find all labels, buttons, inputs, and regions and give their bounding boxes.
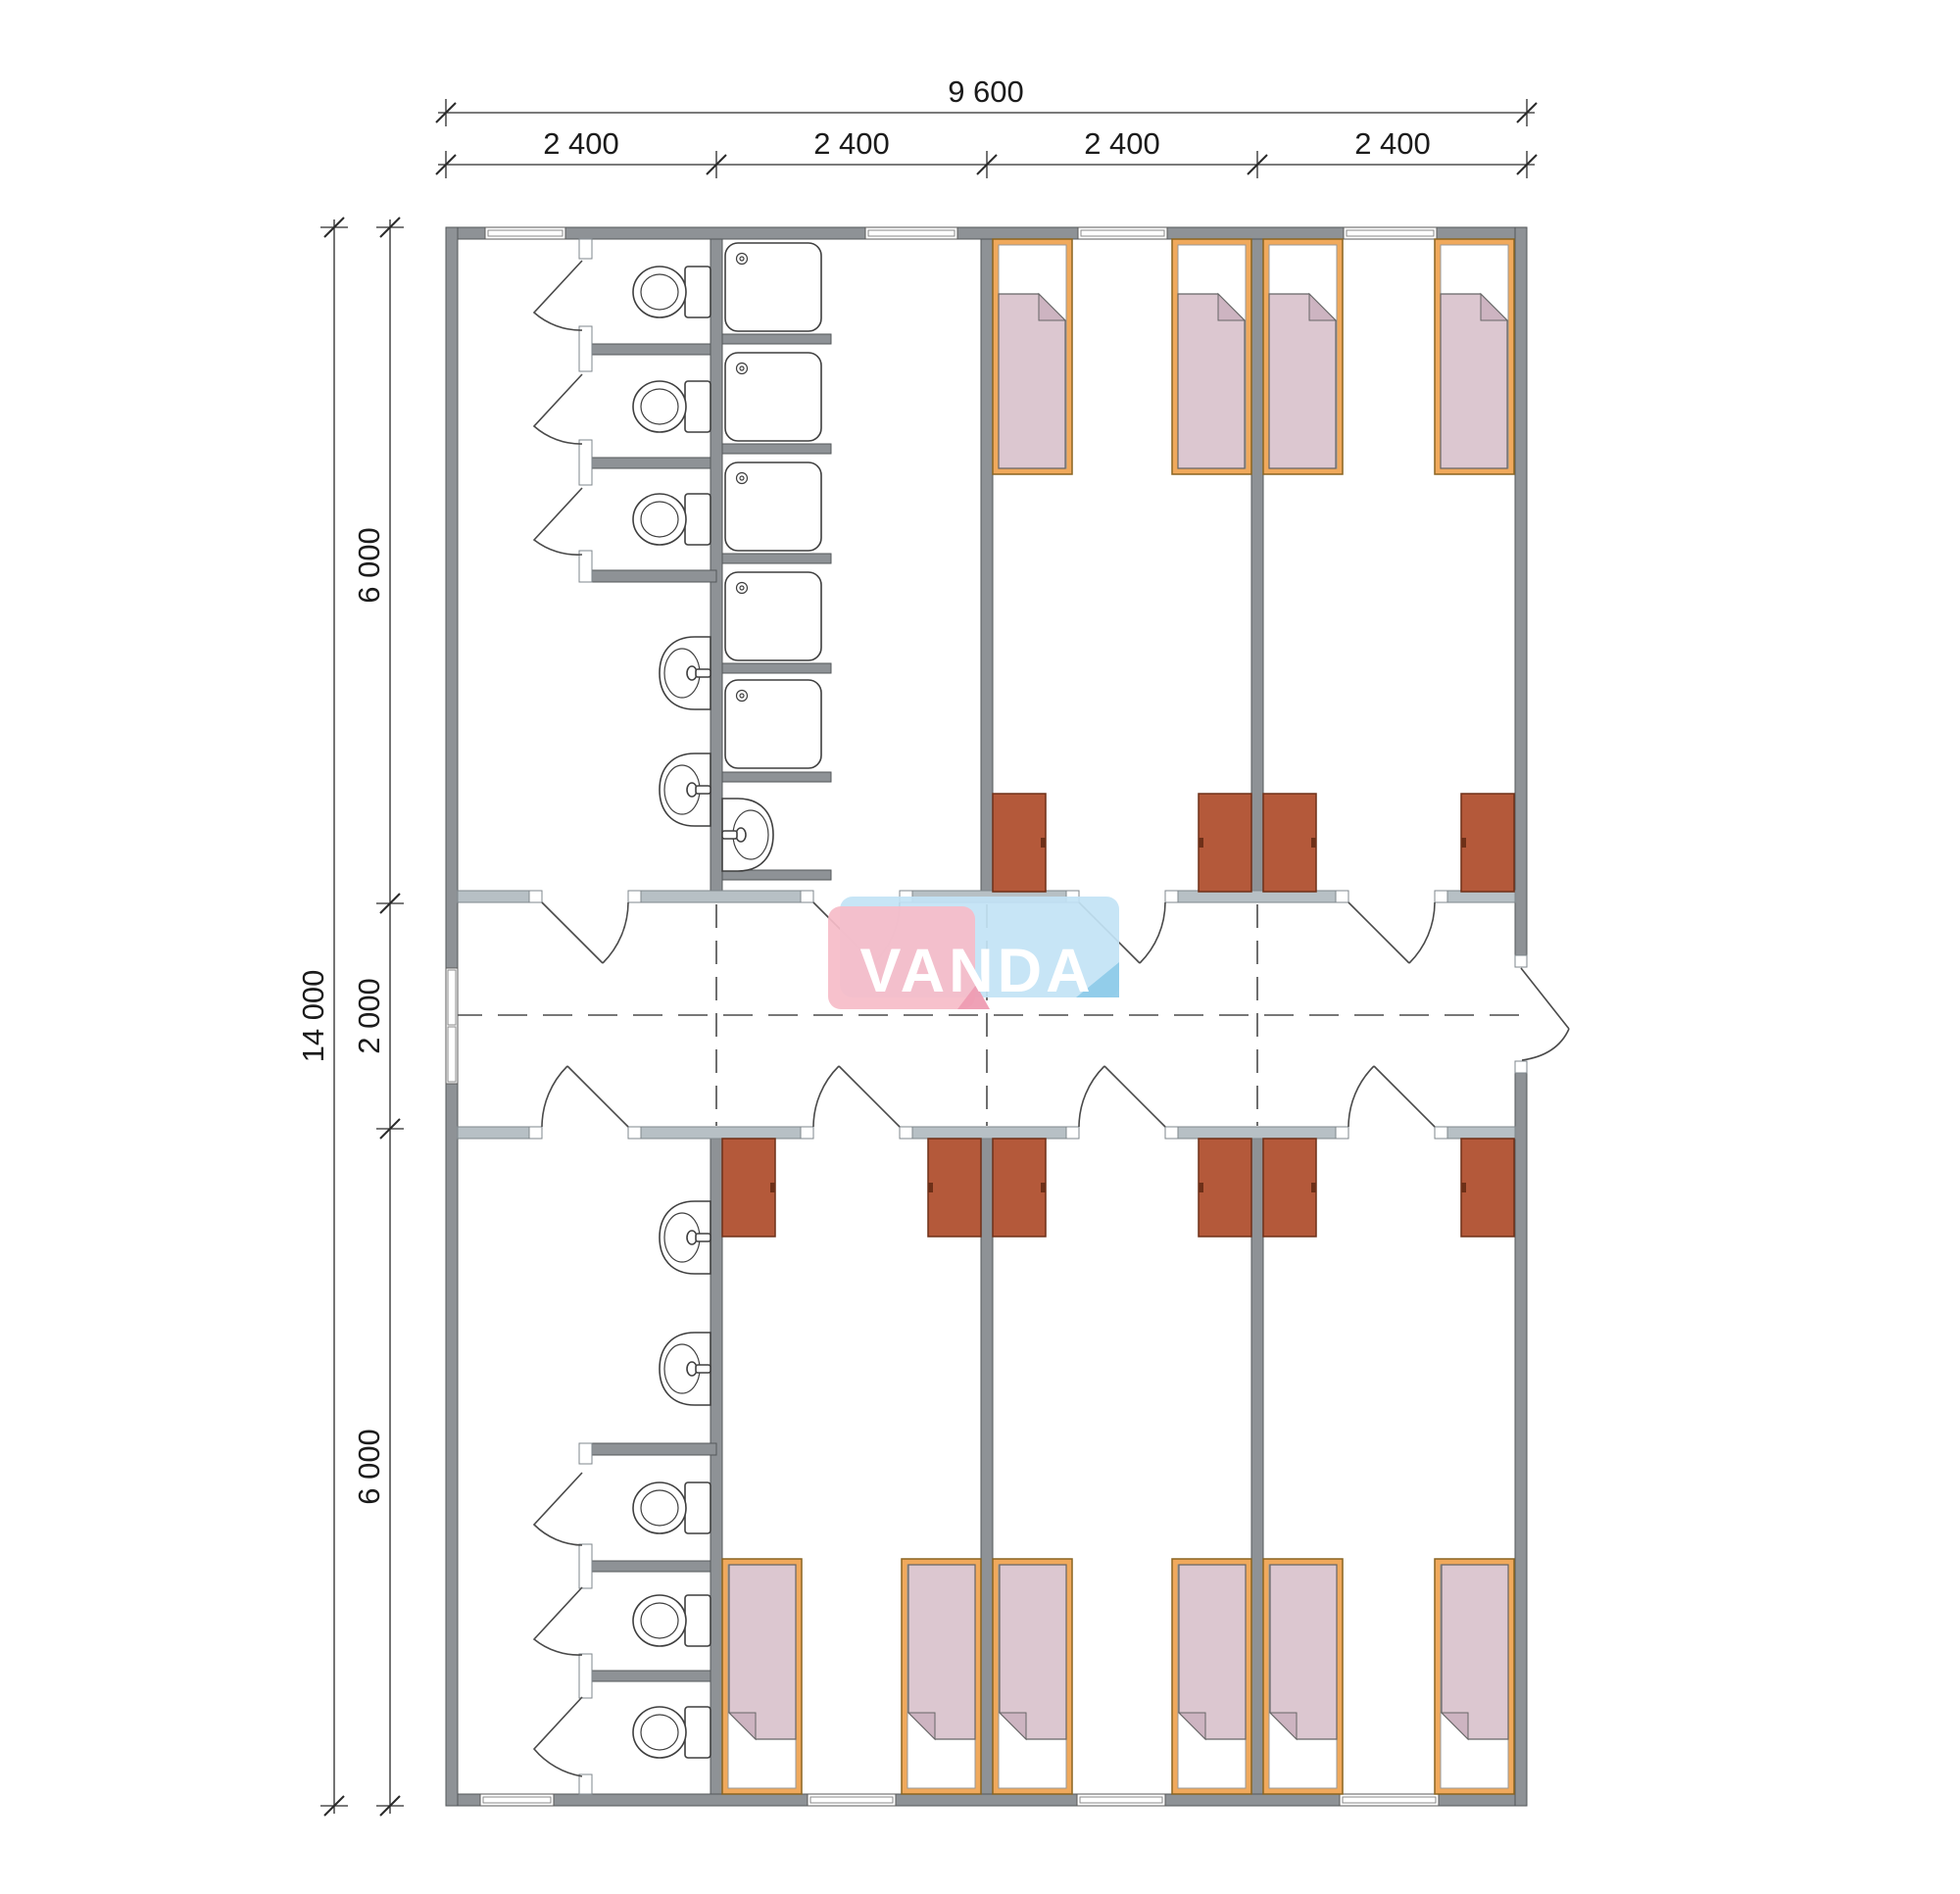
- beds: [722, 239, 1514, 1794]
- dim-label-bay-2: 2 400: [813, 126, 890, 161]
- room-door: [1079, 1066, 1165, 1127]
- toilet: [633, 267, 710, 317]
- toilet: [633, 1482, 710, 1533]
- wc-room-top: [534, 239, 716, 826]
- wardrobe: [1263, 1139, 1316, 1237]
- wall-right-lower: [1515, 1061, 1527, 1806]
- bed: [1172, 239, 1251, 474]
- window: [1078, 227, 1167, 239]
- washbasin: [660, 1201, 710, 1274]
- shower-tray: [725, 680, 821, 768]
- dim-label-row-bottom: 6 000: [352, 1429, 386, 1505]
- dim-label-bay-3: 2 400: [1084, 126, 1160, 161]
- toilet: [633, 381, 710, 432]
- window: [1077, 1794, 1165, 1806]
- vanda-logo: VANDA: [828, 897, 1119, 1009]
- corridor: VANDA: [446, 897, 1569, 1127]
- stall-door: [534, 1697, 582, 1776]
- dim-label-bay-4: 2 400: [1354, 126, 1431, 161]
- room-door: [813, 1066, 900, 1127]
- entrance-door-right: [1521, 968, 1569, 1060]
- dim-label-total-height: 14 000: [296, 970, 330, 1063]
- wc-room-bottom: [534, 1201, 716, 1794]
- wall-left-lower: [446, 1084, 458, 1806]
- shower-tray: [725, 462, 821, 551]
- bed: [1435, 1559, 1514, 1794]
- stall-door: [534, 1473, 582, 1545]
- bed: [902, 1559, 981, 1794]
- wardrobe: [1263, 794, 1316, 892]
- bed: [1172, 1559, 1251, 1794]
- bed: [722, 1559, 802, 1794]
- stall-door: [534, 374, 582, 444]
- wardrobe: [1199, 1139, 1251, 1237]
- window: [1340, 1794, 1439, 1806]
- dim-label-row-top: 6 000: [352, 527, 386, 604]
- shower-tray: [725, 243, 821, 331]
- dim-label-total-width: 9 600: [948, 74, 1024, 109]
- dim-label-corridor: 2 000: [352, 978, 386, 1054]
- bed: [1435, 239, 1514, 474]
- washbasin: [660, 637, 710, 709]
- toilet: [633, 1707, 710, 1758]
- window: [485, 227, 565, 239]
- wardrobe: [1461, 1139, 1514, 1237]
- bed: [1263, 239, 1343, 474]
- room-door: [542, 902, 628, 963]
- wardrobe: [993, 794, 1046, 892]
- bed: [1263, 1559, 1343, 1794]
- window: [865, 227, 957, 239]
- stall-door: [534, 261, 582, 330]
- shower-tray: [725, 353, 821, 441]
- wardrobe: [1199, 794, 1251, 892]
- stall-door: [534, 1587, 582, 1655]
- washbasin: [660, 1333, 710, 1405]
- window: [1344, 227, 1437, 239]
- wardrobe: [1461, 794, 1514, 892]
- wardrobe: [928, 1139, 981, 1237]
- shower-tray: [725, 572, 821, 660]
- floor-plan: 9 600 2 400 2 400 2 400 2 400 14 000 6 0…: [0, 0, 1960, 1894]
- wardrobe: [993, 1139, 1046, 1237]
- logo-text: VANDA: [859, 937, 1094, 1005]
- room-door: [1348, 902, 1435, 963]
- washbasin: [722, 799, 773, 871]
- bed: [993, 1559, 1072, 1794]
- shower-room: [722, 243, 831, 880]
- bed: [993, 239, 1072, 474]
- stall-door: [534, 488, 582, 555]
- room-door: [1348, 1066, 1435, 1127]
- room-door: [542, 1066, 628, 1127]
- wardrobe: [722, 1139, 775, 1237]
- dim-label-bay-1: 2 400: [543, 126, 619, 161]
- toilet: [633, 494, 710, 545]
- entrance-door-left: [446, 968, 458, 1084]
- toilet: [633, 1595, 710, 1646]
- wall-right-upper: [1515, 227, 1527, 967]
- floor-plan-drawing: 9 600 2 400 2 400 2 400 2 400 14 000 6 0…: [0, 0, 1960, 1894]
- window: [808, 1794, 896, 1806]
- washbasin: [660, 753, 710, 826]
- wall-left-upper: [446, 227, 458, 968]
- window: [480, 1794, 554, 1806]
